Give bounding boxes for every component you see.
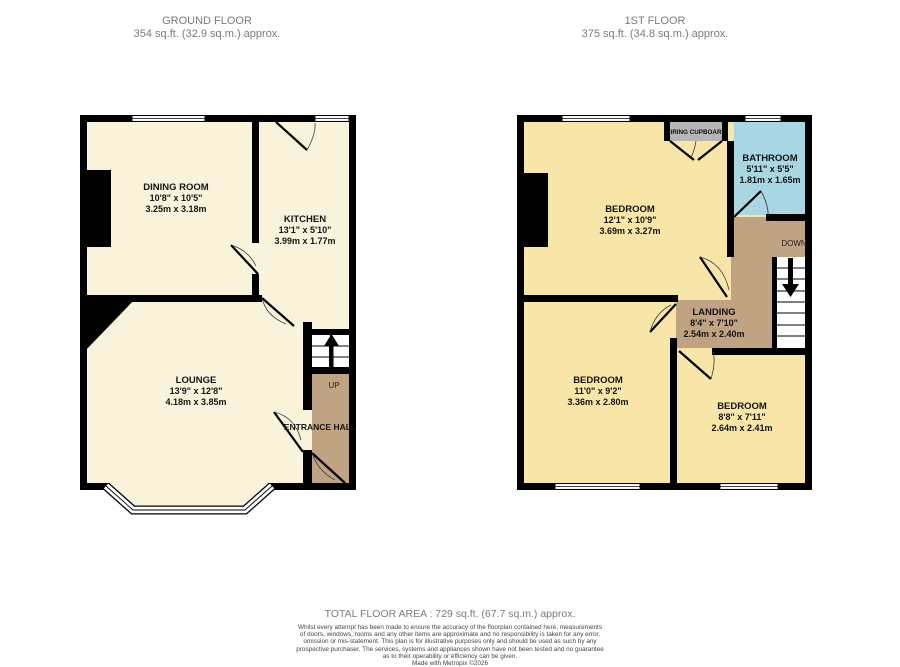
bedroom3-metric: 2.64m x 2.41m [711, 423, 772, 433]
bathroom-metric: 1.81m x 1.65m [739, 175, 800, 185]
down-label: DOWN [781, 239, 807, 248]
total-floor-area: TOTAL FLOOR AREA : 729 sq.ft. (67.7 sq.m… [0, 608, 900, 620]
lounge-label: LOUNGE [176, 375, 217, 386]
first-floor-plan: AIRING CUPBOARD BEDROOM 12'1" x 10'9" 3.… [517, 115, 812, 490]
down-arrow-shaft [788, 258, 793, 286]
disclaimer-line: omission or mis-statement. This plan is … [0, 638, 900, 645]
bedroom3-imperial: 8'8" x 7'11" [718, 412, 765, 422]
floorplan-canvas: DINING ROOM 10'8" x 10'5" 3.25m x 3.18m … [0, 0, 900, 600]
disclaimer-line: prospective purchaser. The services, sys… [0, 646, 900, 653]
dining-room-metric: 3.25m x 3.18m [145, 204, 206, 214]
disclaimer-line: as to their operability or efficiency ca… [0, 653, 900, 660]
kitchen-metric: 3.99m x 1.77m [274, 236, 335, 246]
up-label: UP [328, 381, 339, 390]
disclaimer-line: Whilst every attempt has been made to en… [0, 624, 900, 631]
lounge-metric: 4.18m x 3.85m [165, 397, 226, 407]
bedroom2-metric: 3.36m x 2.80m [567, 397, 628, 407]
floorplan-page: GROUND FLOOR 354 sq.ft. (32.9 sq.m.) app… [0, 0, 900, 667]
bedroom2-label: BEDROOM [573, 375, 623, 386]
kitchen-imperial: 13'1" x 5'10" [279, 225, 332, 235]
ground-floor-plan: DINING ROOM 10'8" x 10'5" 3.25m x 3.18m … [80, 115, 356, 511]
first-chimney-breast [524, 173, 548, 247]
landing-label: LANDING [692, 307, 735, 318]
bedroom3-label: BEDROOM [717, 401, 767, 412]
bedroom1-label: BEDROOM [605, 204, 655, 215]
bedroom2-imperial: 11'0" x 9'2" [574, 386, 621, 396]
landing-metric: 2.54m x 2.40m [683, 329, 744, 339]
bathroom-imperial: 5'11" x 5'5" [746, 164, 793, 174]
entrance-hall-label: ENTRANCE HALL [284, 422, 356, 432]
landing-imperial: 8'4" x 7'10" [690, 318, 738, 328]
disclaimer: Whilst every attempt has been made to en… [0, 624, 900, 667]
chimney-breast [87, 170, 111, 247]
lounge-imperial: 13'9" x 12'8" [170, 386, 223, 396]
bedroom1-metric: 3.69m x 3.27m [599, 226, 660, 236]
credit-line: Made with Metropix ©2026 [0, 660, 900, 667]
dining-room-label: DINING ROOM [143, 182, 209, 193]
airing-cupboard-label: AIRING CUPBOARD [666, 129, 727, 136]
bathroom-label: BATHROOM [742, 153, 797, 164]
bedroom1-imperial: 12'1" x 10'9" [604, 215, 657, 225]
kitchen-label: KITCHEN [284, 214, 326, 225]
disclaimer-line: of doors, windows, rooms and any other i… [0, 631, 900, 638]
up-arrow-shaft [329, 345, 334, 367]
dining-room-imperial: 10'8" x 10'5" [150, 193, 203, 203]
